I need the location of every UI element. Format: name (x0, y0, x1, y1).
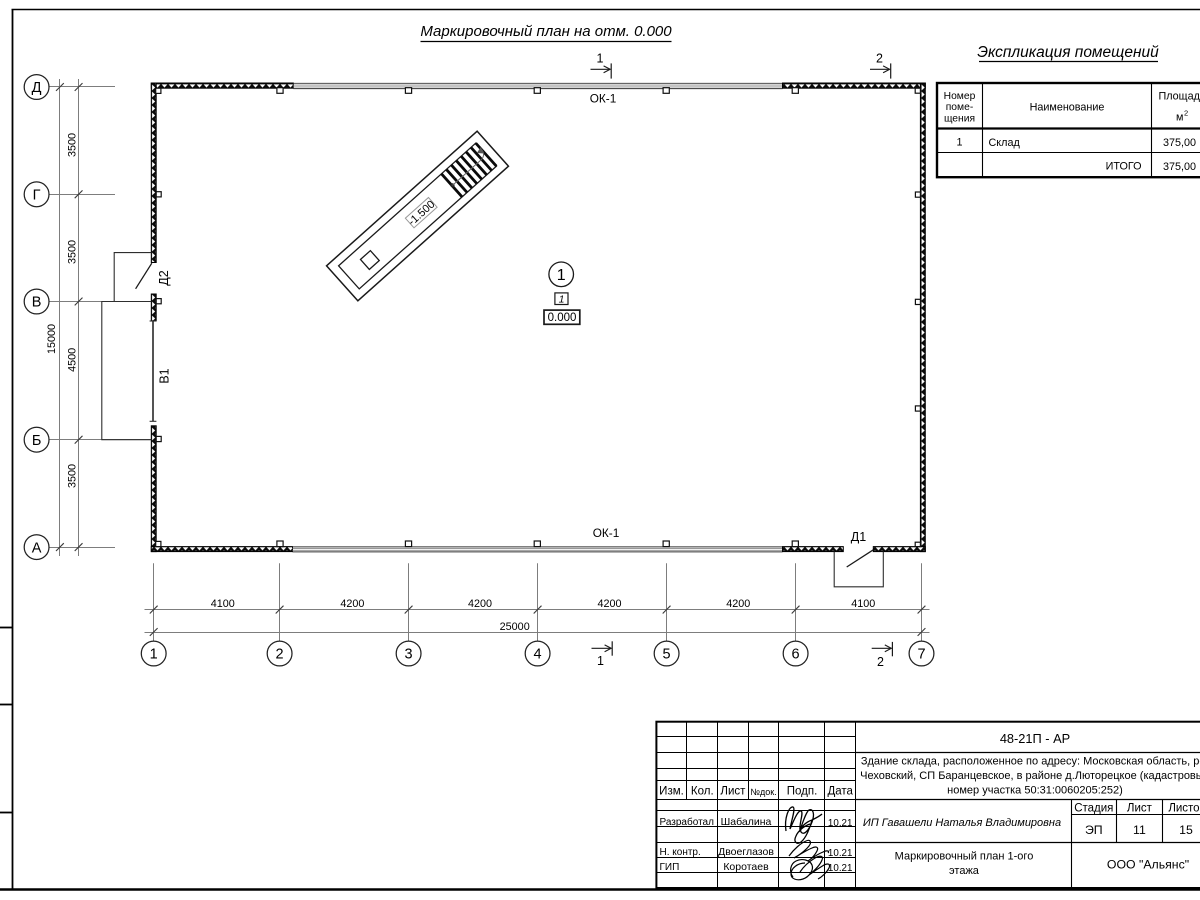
svg-text:Маркировочный план 1-ого: Маркировочный план 1-ого (895, 850, 1034, 862)
svg-text:4: 4 (534, 647, 542, 663)
svg-text:2: 2 (876, 51, 883, 65)
svg-text:ИП Гавашели Наталья Владимиров: ИП Гавашели Наталья Владимировна (863, 817, 1061, 829)
svg-text:2: 2 (1184, 109, 1188, 118)
svg-text:4200: 4200 (726, 598, 750, 610)
svg-text:1: 1 (597, 654, 604, 668)
svg-text:10.21: 10.21 (828, 818, 853, 829)
svg-text:Склад: Склад (989, 137, 1021, 149)
svg-text:15000: 15000 (46, 324, 58, 354)
svg-text:А: А (32, 540, 42, 556)
svg-text:В1: В1 (157, 368, 171, 383)
svg-text:25000: 25000 (500, 621, 530, 633)
svg-text:Коротаев: Коротаев (723, 861, 769, 873)
svg-text:этажа: этажа (949, 865, 980, 877)
svg-text:6: 6 (792, 647, 800, 663)
svg-text:4100: 4100 (211, 598, 235, 610)
svg-text:Кол.: Кол. (691, 786, 714, 798)
svg-text:В: В (32, 295, 42, 311)
svg-text:3: 3 (405, 647, 413, 663)
svg-text:1: 1 (597, 51, 604, 65)
svg-text:Листов: Листов (1168, 803, 1200, 815)
svg-text:Экспликация помещений: Экспликация помещений (977, 44, 1159, 61)
svg-text:3500: 3500 (67, 133, 79, 157)
svg-text:4200: 4200 (340, 598, 364, 610)
svg-text:ООО "Альянс": ООО "Альянс" (1107, 857, 1189, 871)
svg-text:15: 15 (1179, 823, 1193, 837)
svg-text:Лист: Лист (720, 786, 746, 798)
svg-text:Н. контр.: Н. контр. (660, 847, 701, 858)
svg-text:3500: 3500 (67, 240, 79, 264)
svg-text:2: 2 (276, 647, 284, 663)
svg-text:Д1: Д1 (851, 530, 866, 544)
svg-text:3500: 3500 (67, 464, 79, 488)
svg-text:48-21П - АР: 48-21П - АР (1000, 731, 1070, 746)
svg-text:ГИП: ГИП (660, 862, 680, 873)
svg-text:7: 7 (917, 647, 925, 663)
svg-text:11: 11 (1133, 823, 1146, 837)
svg-text:Г: Г (33, 188, 41, 204)
svg-text:ОК-1: ОК-1 (590, 92, 617, 106)
svg-text:4200: 4200 (597, 598, 621, 610)
svg-text:Д2: Д2 (157, 270, 171, 285)
svg-text:Разработал: Разработал (660, 816, 715, 828)
svg-text:Д: Д (32, 80, 42, 96)
svg-text:ИТОГО: ИТОГО (1106, 161, 1142, 173)
svg-text:Дата: Дата (827, 786, 853, 798)
svg-text:375,00: 375,00 (1163, 137, 1196, 149)
svg-text:Изм.: Изм. (659, 786, 684, 798)
svg-text:4100: 4100 (851, 598, 875, 610)
svg-text:ЭП: ЭП (1085, 823, 1103, 837)
svg-text:375,00: 375,00 (1163, 161, 1196, 173)
svg-text:Подп.: Подп. (787, 786, 818, 798)
svg-text:Б: Б (32, 433, 42, 449)
svg-text:5: 5 (663, 647, 671, 663)
svg-text:4200: 4200 (468, 598, 492, 610)
svg-text:Шабалина: Шабалина (721, 816, 772, 828)
svg-text:0.000: 0.000 (548, 312, 577, 324)
svg-text:Наименование: Наименование (1030, 102, 1105, 114)
svg-text:щения: щения (944, 113, 975, 124)
svg-text:1: 1 (557, 267, 566, 284)
svg-text:№док.: №док. (750, 787, 776, 797)
svg-text:4500: 4500 (67, 348, 79, 372)
svg-text:номер участка 50:31:0060205:25: номер участка 50:31:0060205:252) (947, 784, 1123, 796)
svg-text:10.21: 10.21 (828, 848, 853, 859)
svg-text:10.21: 10.21 (828, 863, 853, 874)
svg-text:Номер: Номер (944, 91, 976, 102)
svg-text:1: 1 (150, 647, 158, 663)
svg-text:Здание склада, расположенное п: Здание склада, расположенное по адресу: … (861, 755, 1200, 767)
svg-text:поме-: поме- (946, 102, 974, 113)
svg-text:Стадия: Стадия (1074, 803, 1113, 815)
svg-text:Лист: Лист (1127, 803, 1153, 815)
svg-text:2: 2 (877, 655, 884, 669)
svg-text:Маркировочный план на отм. 0.0: Маркировочный план на отм. 0.000 (420, 23, 672, 40)
svg-text:ОК-1: ОК-1 (593, 526, 620, 540)
svg-text:Площадь: Площадь (1159, 90, 1200, 102)
svg-text:1: 1 (559, 293, 565, 305)
svg-text:м: м (1176, 112, 1183, 124)
svg-text:Чеховский, СП Баранцевское, в: Чеховский, СП Баранцевское, в районе д.Л… (860, 770, 1200, 782)
svg-text:1: 1 (956, 137, 962, 149)
svg-text:Двоеглазов: Двоеглазов (718, 846, 774, 858)
